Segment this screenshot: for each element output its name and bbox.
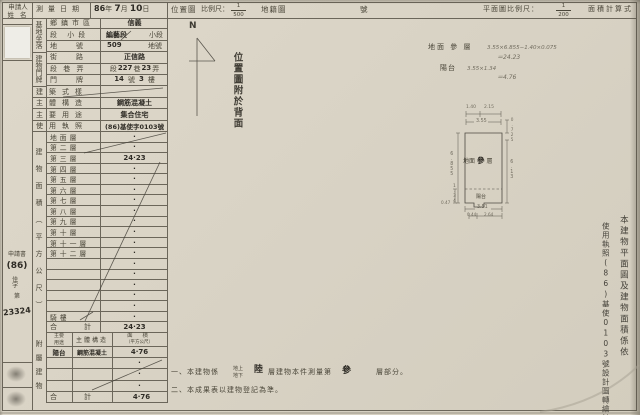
scan-curl xyxy=(0,0,640,415)
scanned-survey-form: 申請人 姓 名 測量日期 86年 7月 10日 位置圖 比例尺： 1 500 地… xyxy=(0,0,640,415)
